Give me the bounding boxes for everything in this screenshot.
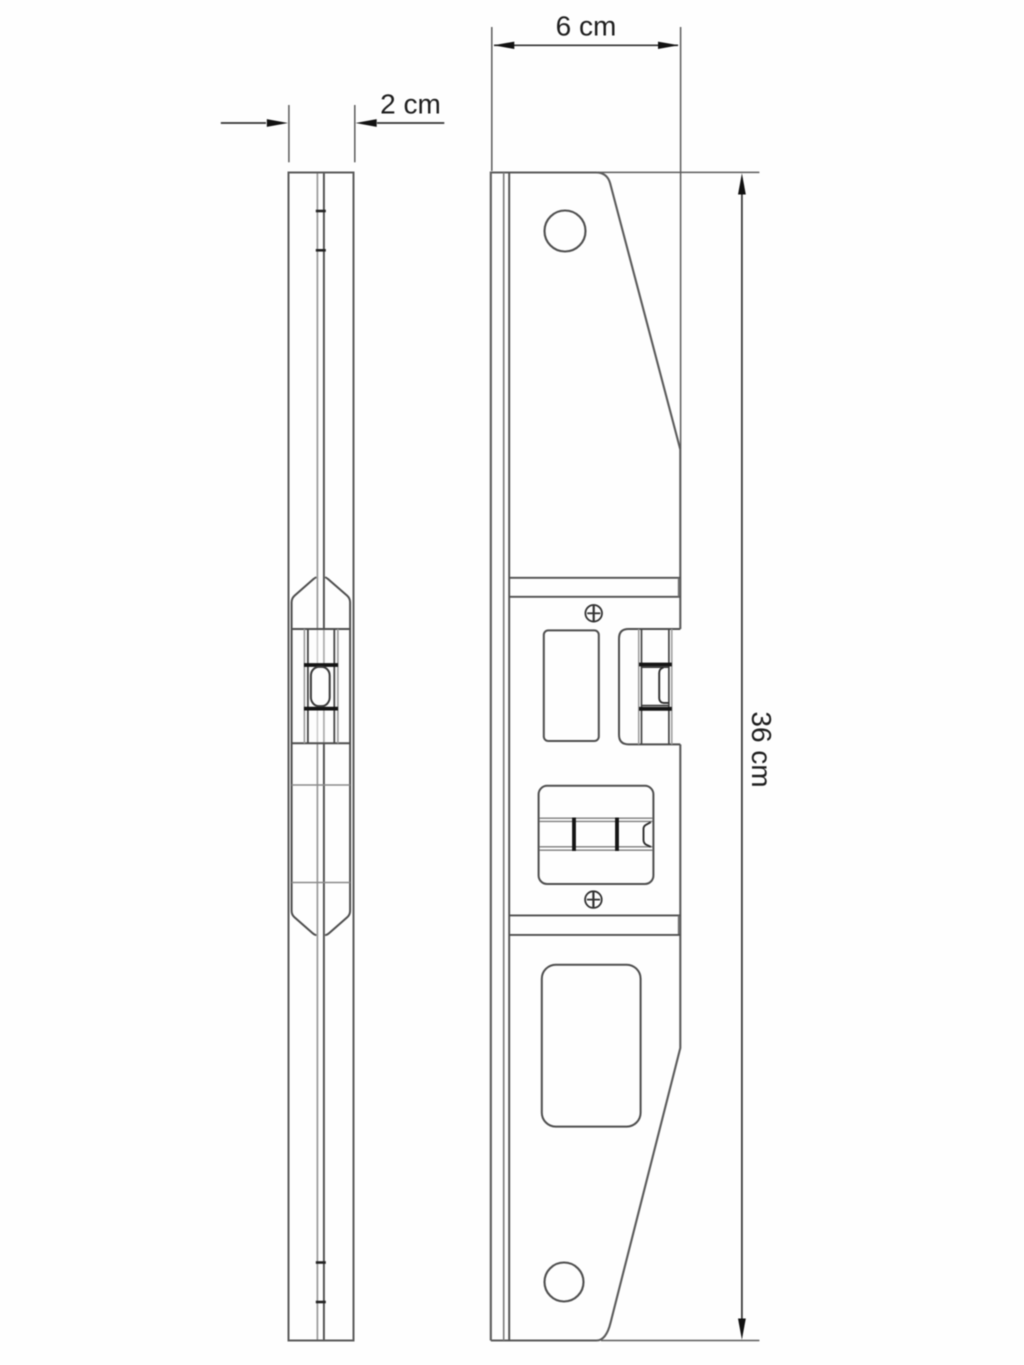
svg-text:36 cm: 36 cm: [746, 711, 777, 787]
svg-text:6 cm: 6 cm: [556, 11, 617, 42]
svg-text:2 cm: 2 cm: [380, 89, 441, 120]
